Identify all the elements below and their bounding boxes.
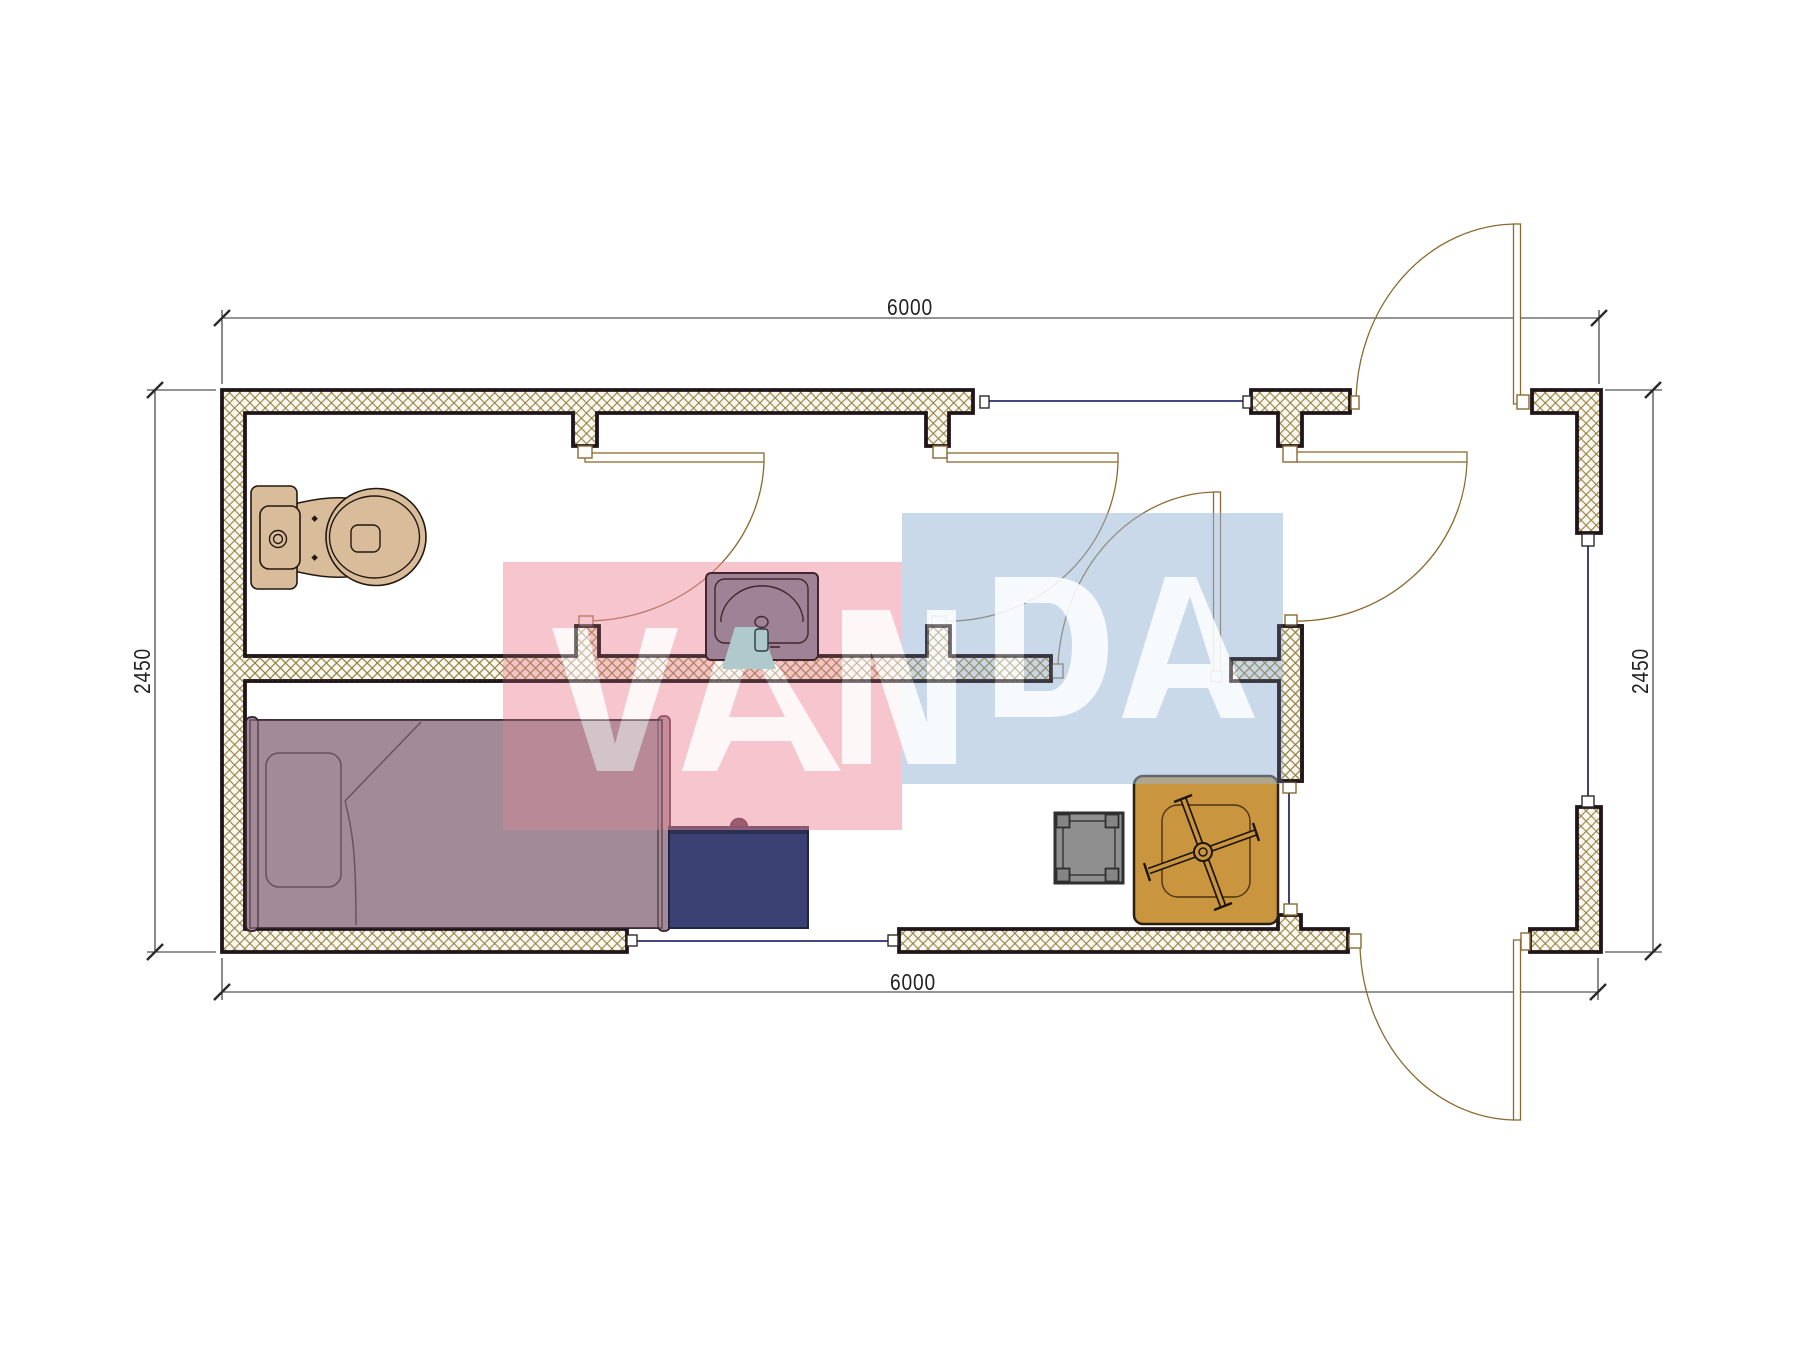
svg-text:6000: 6000 [890,969,936,995]
svg-text:2450: 2450 [1627,648,1653,694]
svg-text:2450: 2450 [129,648,155,694]
svg-text:6000: 6000 [887,294,933,320]
